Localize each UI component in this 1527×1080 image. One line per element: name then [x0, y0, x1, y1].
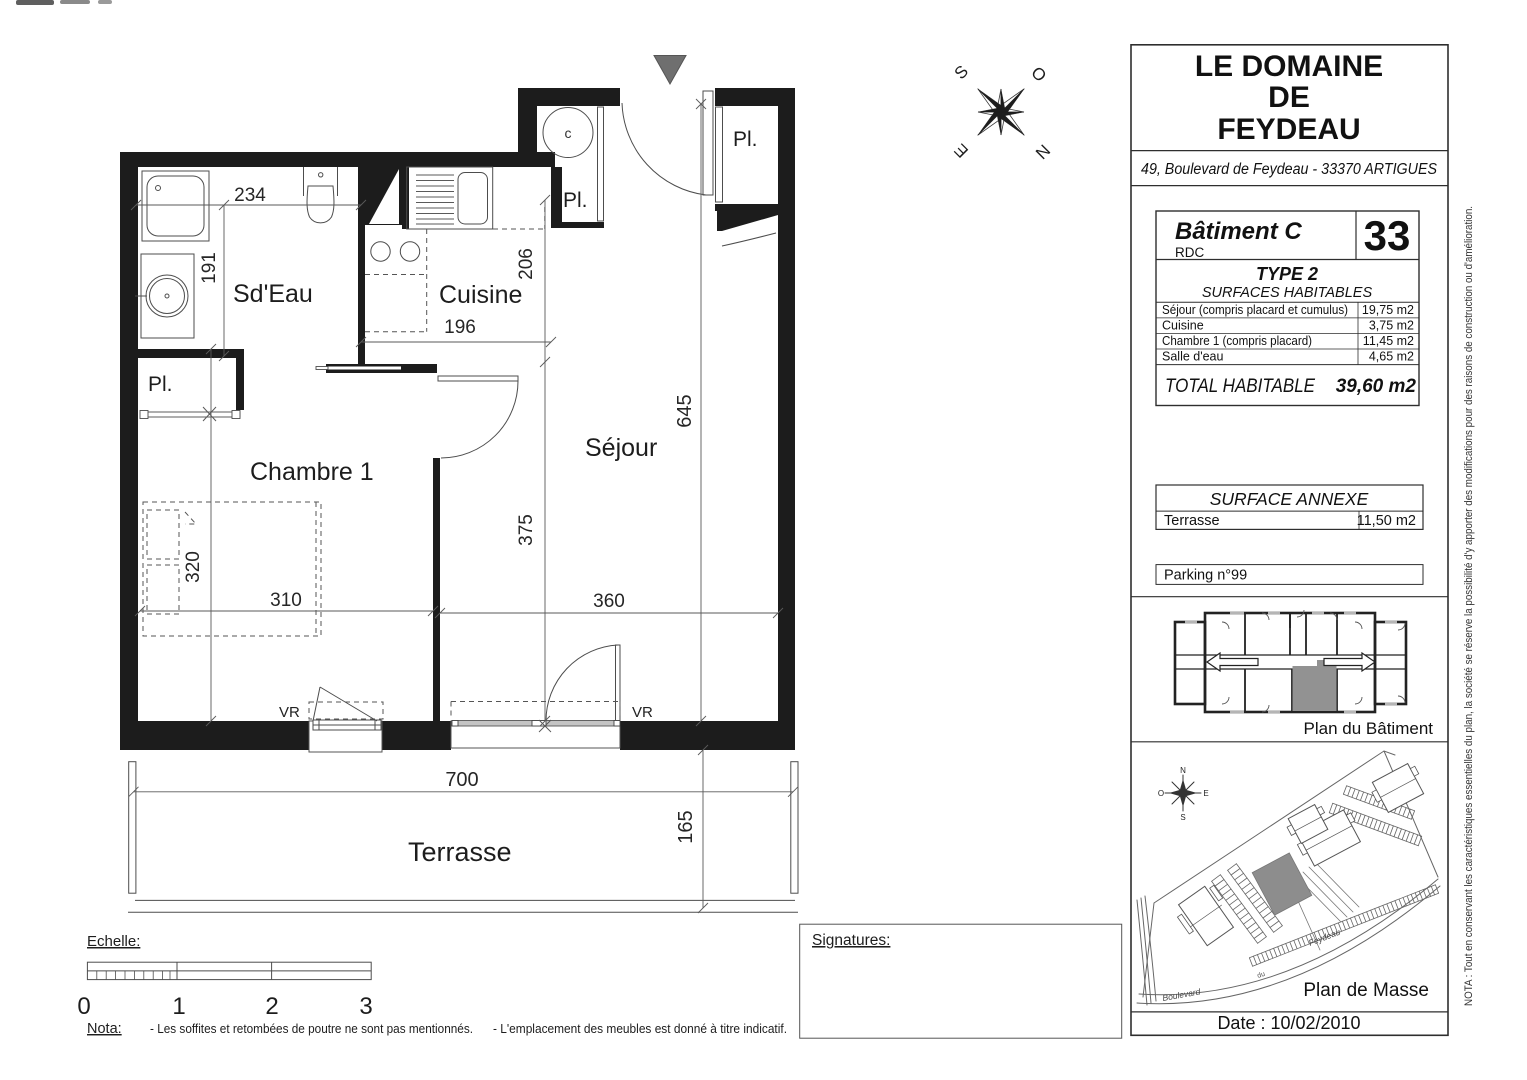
svg-text:Sd'Eau: Sd'Eau — [233, 280, 313, 308]
svg-text:Terrasse: Terrasse — [1164, 513, 1220, 529]
svg-text:DE: DE — [1268, 81, 1310, 114]
svg-text:375: 375 — [516, 514, 537, 546]
svg-text:700: 700 — [445, 769, 478, 791]
svg-text:Séjour: Séjour — [585, 434, 657, 462]
svg-text:196: 196 — [444, 317, 476, 338]
svg-text:11,45 m2: 11,45 m2 — [1363, 334, 1414, 348]
svg-text:4,65 m2: 4,65 m2 — [1369, 350, 1414, 364]
svg-text:2: 2 — [265, 993, 278, 1020]
svg-text:N: N — [1180, 766, 1186, 775]
svg-text:SURFACES HABITABLES: SURFACES HABITABLES — [1202, 285, 1373, 301]
svg-text:Pl.: Pl. — [733, 128, 758, 151]
svg-text:320: 320 — [183, 551, 204, 583]
svg-text:Plan de Masse: Plan de Masse — [1303, 980, 1429, 1001]
svg-text:165: 165 — [675, 810, 697, 843]
svg-text:S: S — [1180, 813, 1185, 822]
svg-text:360: 360 — [593, 591, 625, 612]
svg-text:- Les soffites et retombées de: - Les soffites et retombées de poutre ne… — [150, 1021, 473, 1036]
svg-text:3: 3 — [359, 993, 372, 1020]
svg-text:E: E — [1203, 789, 1208, 798]
svg-text:206: 206 — [516, 248, 537, 280]
svg-text:39,60 m2: 39,60 m2 — [1336, 376, 1417, 397]
svg-text:Cuisine: Cuisine — [1162, 319, 1204, 333]
svg-text:234: 234 — [234, 185, 266, 206]
svg-text:Séjour (compris placard et cum: Séjour (compris placard et cumulus) — [1162, 303, 1348, 317]
svg-text:49, Boulevard de Feydeau - 333: 49, Boulevard de Feydeau - 33370 ARTIGUE… — [1141, 161, 1438, 178]
svg-text:Signatures:: Signatures: — [812, 932, 890, 949]
svg-text:LE DOMAINE: LE DOMAINE — [1195, 50, 1383, 83]
svg-text:Cuisine: Cuisine — [439, 281, 522, 309]
svg-text:TYPE 2: TYPE 2 — [1256, 264, 1318, 284]
svg-text:Plan du Bâtiment: Plan du Bâtiment — [1304, 719, 1434, 738]
svg-text:Pl.: Pl. — [148, 373, 173, 396]
svg-text:Echelle:: Echelle: — [87, 933, 140, 950]
svg-text:Chambre 1 (compris placard): Chambre 1 (compris placard) — [1162, 334, 1312, 348]
svg-text:VR: VR — [279, 704, 300, 721]
svg-text:- L'emplacement des meubles es: - L'emplacement des meubles est donné à … — [493, 1021, 787, 1036]
svg-text:310: 310 — [270, 590, 302, 611]
svg-text:191: 191 — [199, 252, 220, 284]
svg-text:33: 33 — [1364, 212, 1411, 259]
svg-text:19,75 m2: 19,75 m2 — [1362, 303, 1414, 317]
svg-text:O: O — [1158, 789, 1164, 798]
svg-text:Salle d'eau: Salle d'eau — [1162, 350, 1224, 364]
svg-text:Chambre 1: Chambre 1 — [250, 458, 374, 486]
svg-text:0: 0 — [77, 993, 90, 1020]
svg-text:11,50 m2: 11,50 m2 — [1357, 513, 1416, 529]
svg-text:1: 1 — [172, 993, 185, 1020]
svg-text:Parking n°99: Parking n°99 — [1164, 568, 1247, 584]
svg-text:645: 645 — [674, 394, 696, 427]
svg-text:VR: VR — [632, 704, 653, 721]
svg-text:Date : 10/02/2010: Date : 10/02/2010 — [1217, 1013, 1360, 1033]
svg-text:Nota:: Nota: — [87, 1021, 122, 1037]
svg-text:FEYDEAU: FEYDEAU — [1217, 113, 1360, 146]
svg-text:Terrasse: Terrasse — [408, 837, 512, 867]
svg-text:c: c — [565, 125, 572, 141]
svg-text:Pl.: Pl. — [563, 189, 588, 212]
svg-text:SURFACE ANNEXE: SURFACE ANNEXE — [1210, 489, 1369, 509]
svg-text:Bâtiment C: Bâtiment C — [1175, 218, 1302, 245]
svg-text:TOTAL HABITABLE: TOTAL HABITABLE — [1165, 376, 1315, 397]
svg-text:NOTA : Tout en conservant les: NOTA : Tout en conservant les caractéris… — [1463, 206, 1475, 1006]
svg-text:RDC: RDC — [1175, 245, 1204, 260]
svg-text:3,75 m2: 3,75 m2 — [1369, 319, 1414, 333]
